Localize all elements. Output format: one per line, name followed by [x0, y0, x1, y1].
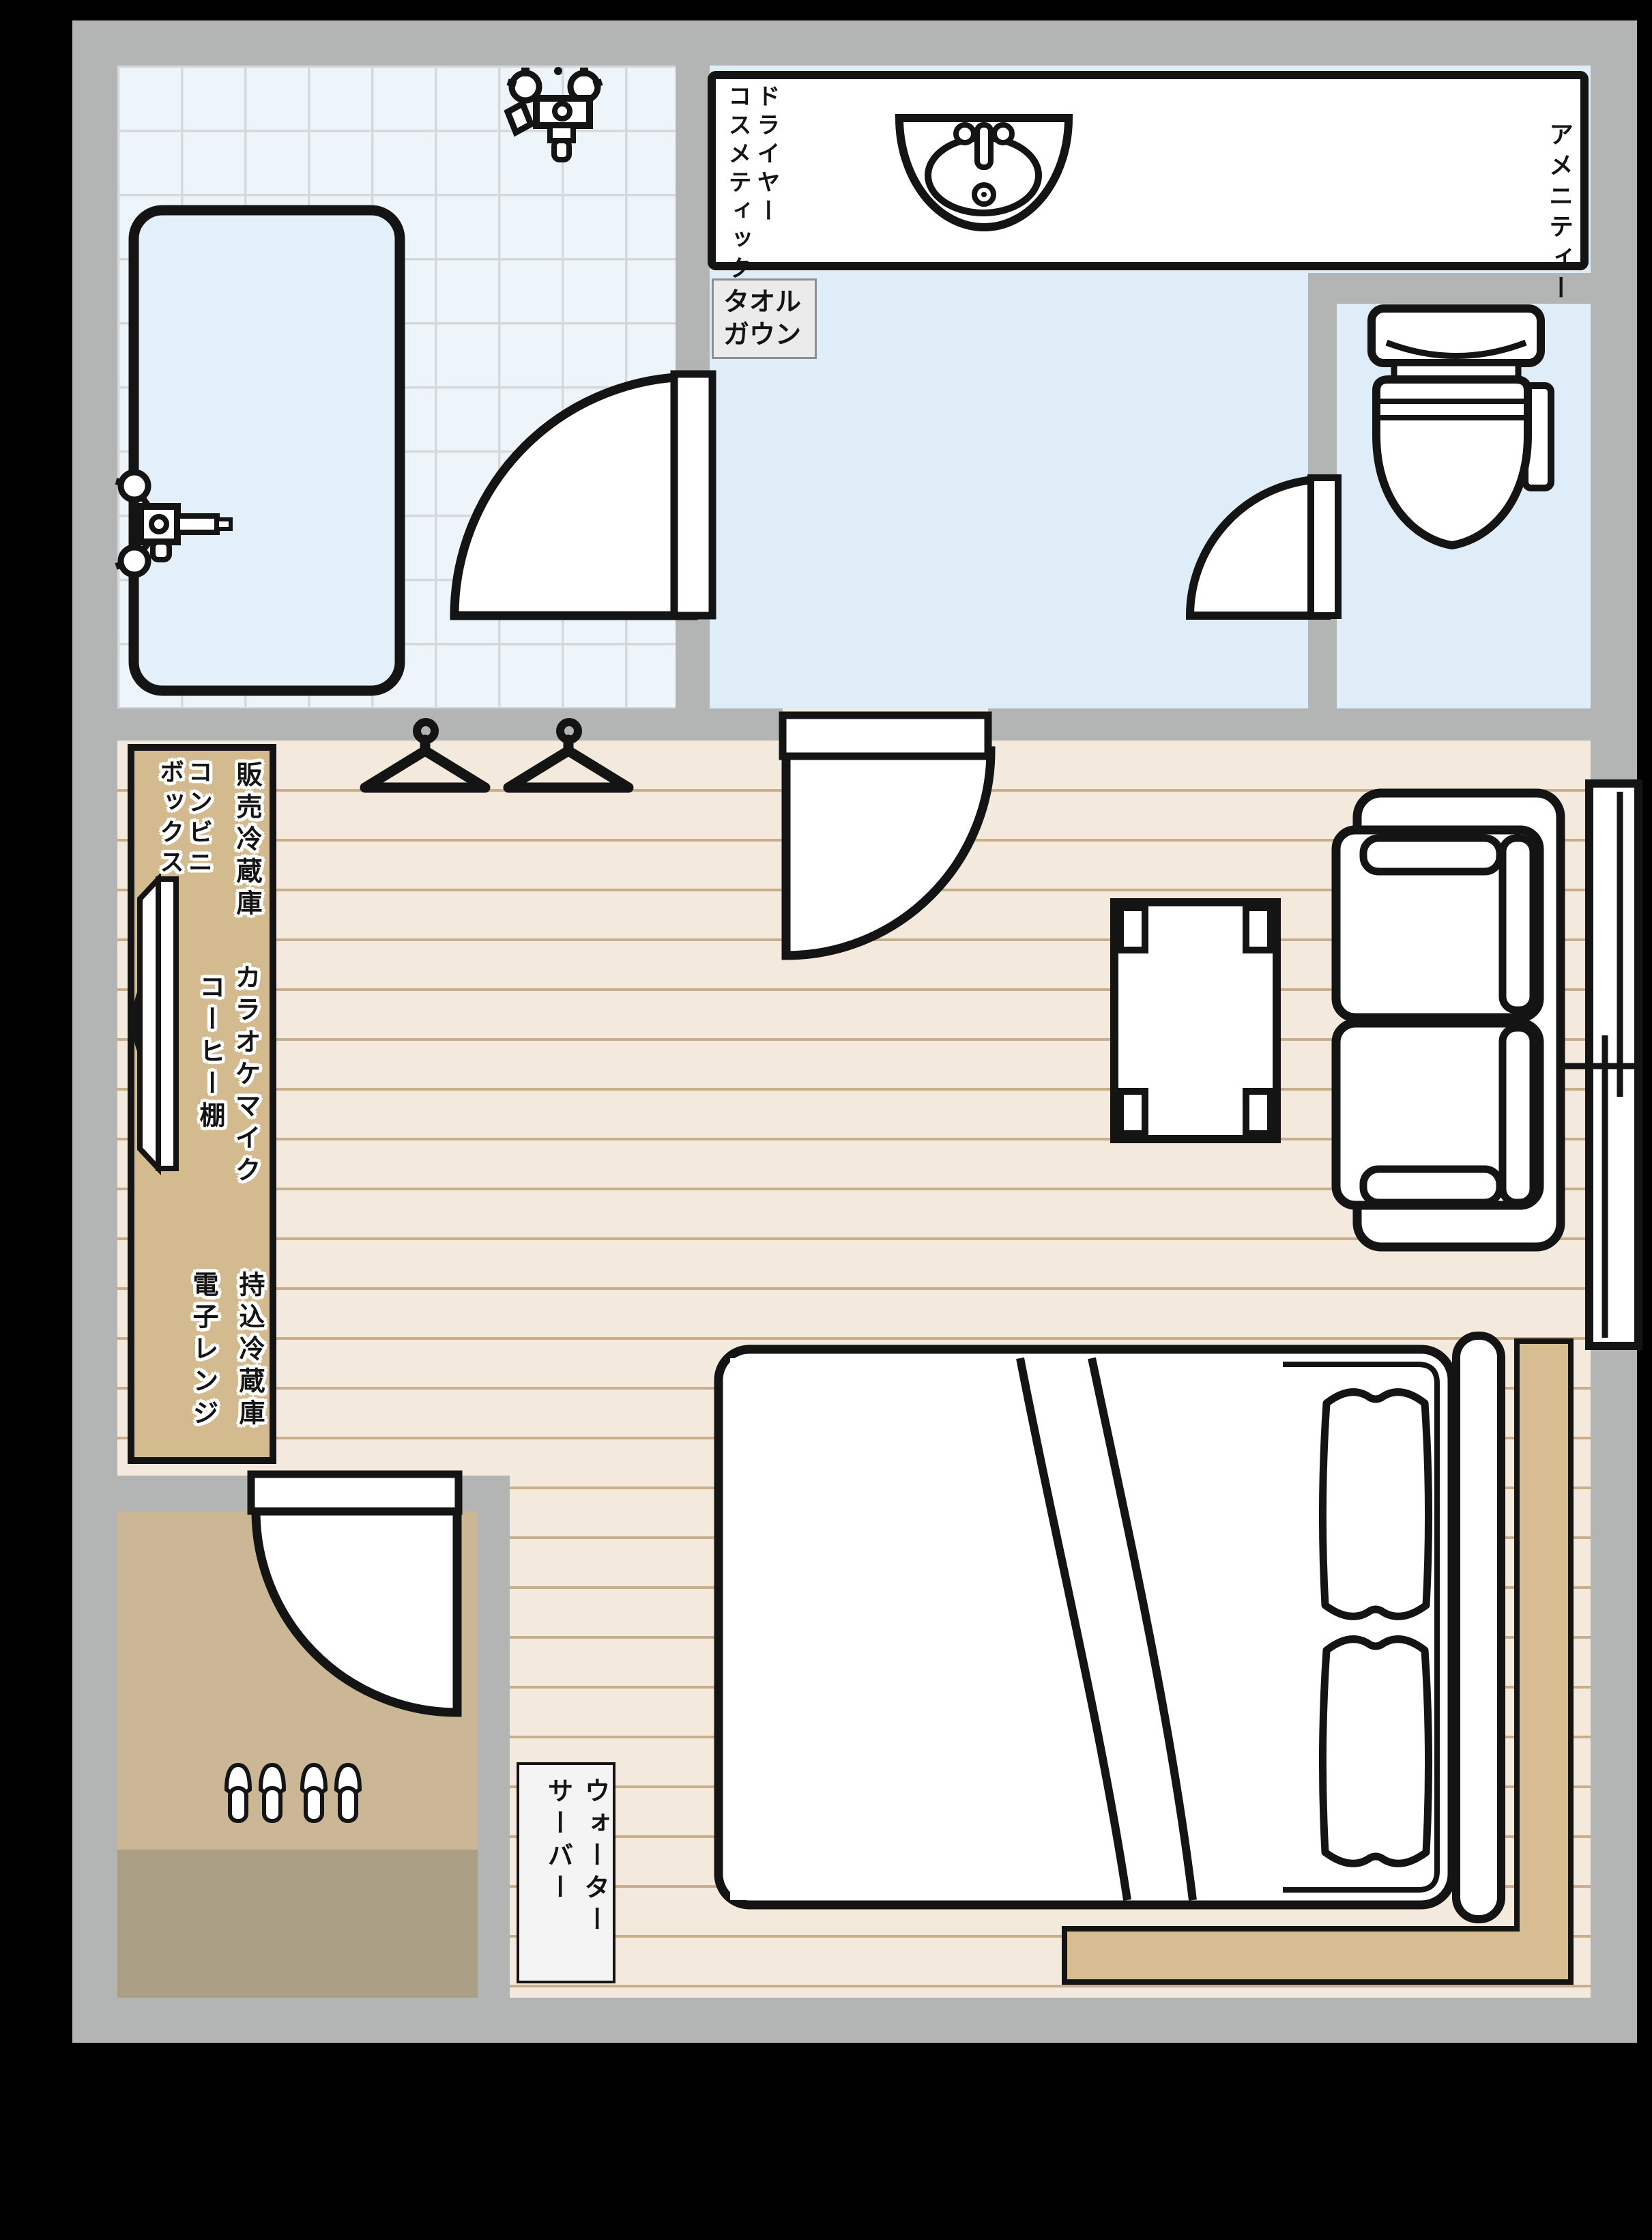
water-server-label: ウォーター サーバー [517, 1762, 615, 1983]
pillow [1322, 1392, 1428, 1617]
microwave-label: 電子レンジ [186, 1271, 218, 1431]
karaoke-mic-label: カラオケマイク [229, 964, 261, 1188]
pillow [1322, 1639, 1428, 1864]
sofa [1336, 793, 1561, 1247]
vending-fridge-label: 販売冷蔵庫 [230, 761, 262, 921]
carry-in-fridge-label: 持込冷蔵庫 [233, 1271, 265, 1431]
tv-icon [135, 879, 176, 1168]
table [1114, 902, 1277, 1139]
sink-counter [712, 75, 1584, 266]
entrance-genkan [117, 1850, 478, 1998]
towel-gown-label: タオル ガウン [712, 278, 817, 359]
coffee-shelf-label: コーヒー棚 [193, 973, 225, 1134]
bathtub [134, 210, 400, 691]
bed [719, 1336, 1501, 1919]
convenience-box-label: コンビニ ボックス [156, 759, 213, 879]
counter-items-label: ドライヤー コスメティック [723, 84, 781, 285]
headboard [1456, 1336, 1501, 1919]
amenity-label: アメニティー [1544, 121, 1575, 306]
floor-plan: ドライヤー コスメティック アメニティー タオル ガウン 販売冷蔵庫 コンビニ … [0, 0, 1652, 2240]
